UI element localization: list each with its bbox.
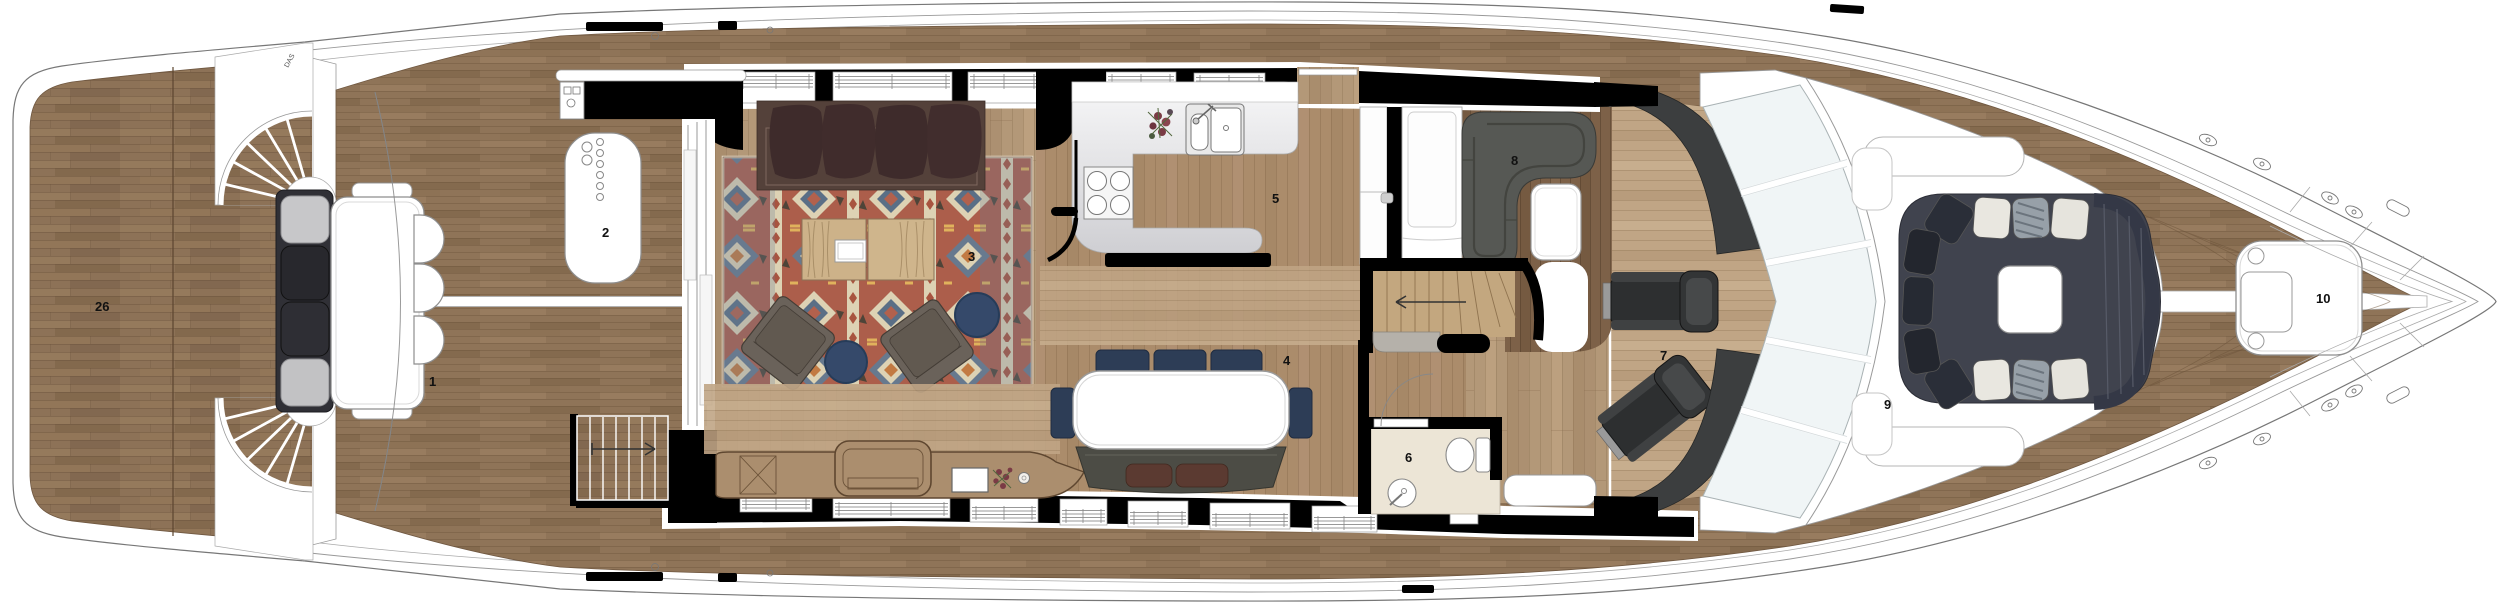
svg-text:2: 2 [602,225,609,240]
svg-text:1: 1 [429,374,436,389]
svg-text:8: 8 [1511,153,1518,168]
svg-text:7: 7 [1660,348,1667,363]
svg-text:4: 4 [1283,353,1291,368]
svg-text:6: 6 [1405,450,1412,465]
svg-text:10: 10 [2316,291,2330,306]
svg-text:5: 5 [1272,191,1279,206]
svg-text:9: 9 [1884,397,1891,412]
svg-text:26: 26 [95,299,109,314]
svg-text:3: 3 [968,249,975,264]
